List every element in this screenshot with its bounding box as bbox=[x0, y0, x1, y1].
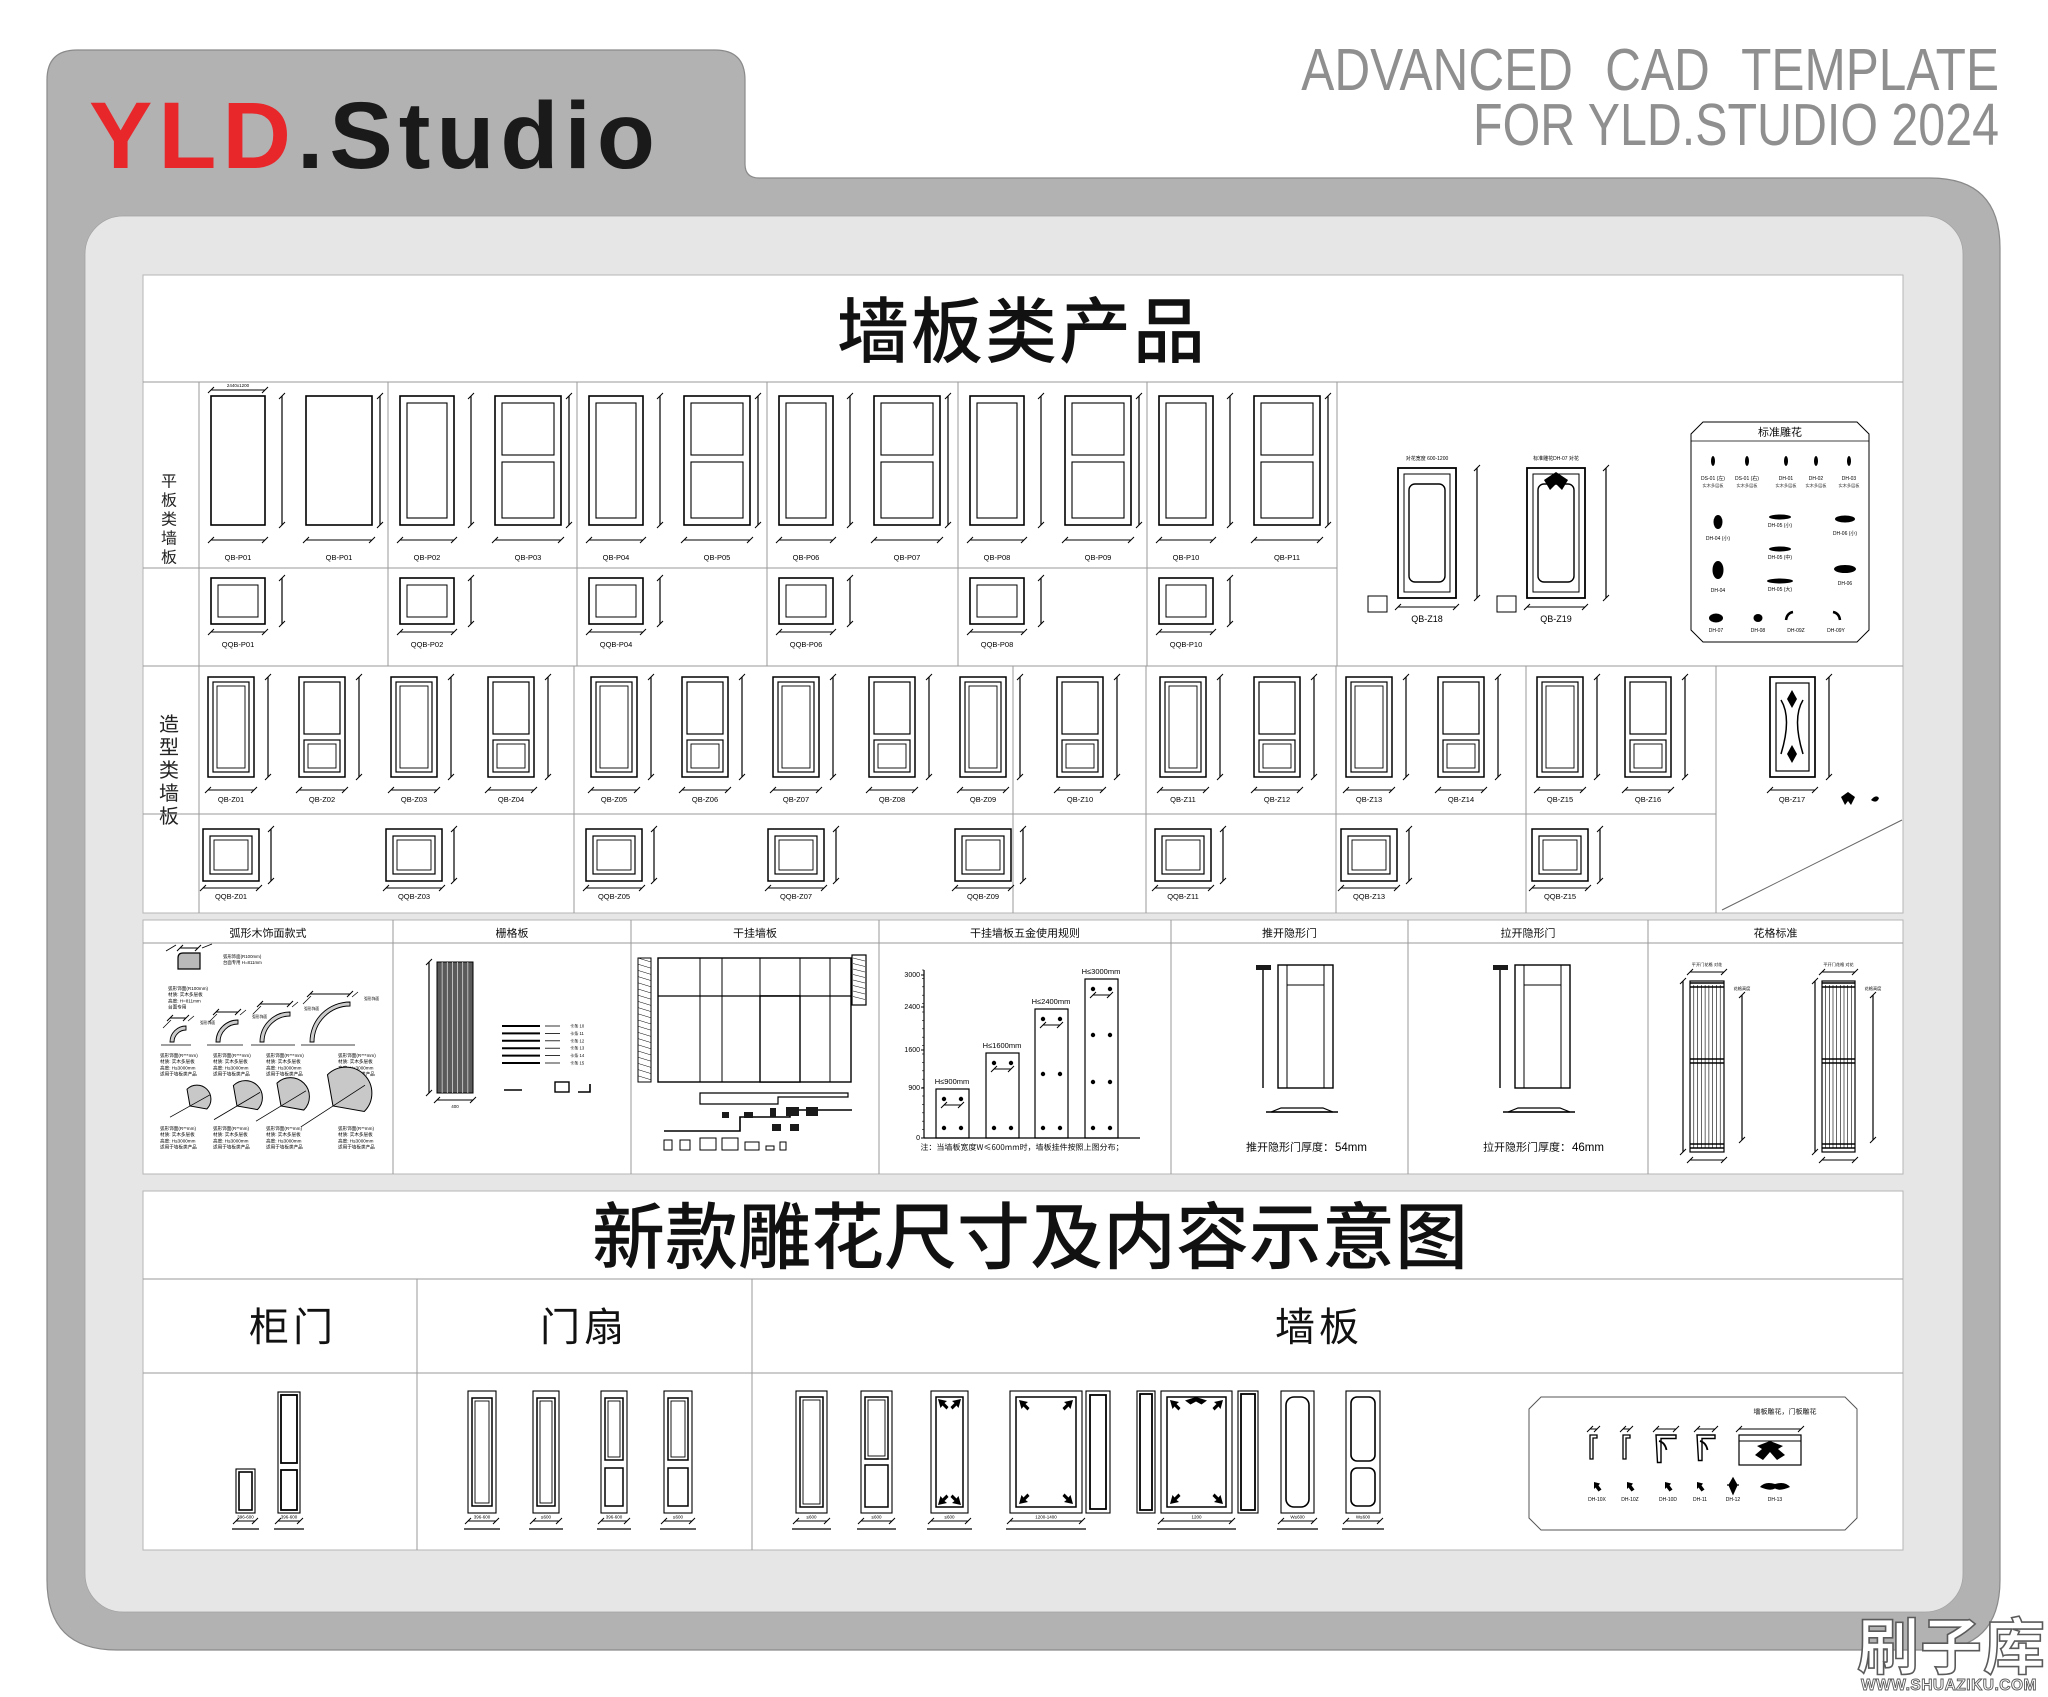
svg-text:QQB-P01: QQB-P01 bbox=[222, 640, 255, 649]
svg-text:弧形饰面(R100mm): 弧形饰面(R100mm) bbox=[223, 953, 262, 960]
svg-text:实木多层板: 实木多层板 bbox=[1703, 482, 1725, 489]
svg-text:QQB-Z01: QQB-Z01 bbox=[215, 892, 247, 901]
svg-text:DH-05 (小): DH-05 (小) bbox=[1768, 522, 1793, 529]
svg-text:400: 400 bbox=[451, 1104, 459, 1109]
svg-text:弧形饰面(R100mm): 弧形饰面(R100mm) bbox=[168, 985, 209, 992]
svg-text:QQB-P04: QQB-P04 bbox=[600, 640, 633, 649]
svg-text:标准雕花DH-07 对花: 标准雕花DH-07 对花 bbox=[1533, 455, 1579, 462]
svg-text:DH-07: DH-07 bbox=[1709, 628, 1724, 634]
svg-text:QB-Z01: QB-Z01 bbox=[218, 795, 244, 804]
svg-text:≤600: ≤600 bbox=[945, 1515, 955, 1520]
svg-text:QQB-P06: QQB-P06 bbox=[790, 640, 823, 649]
svg-text:QB-Z03: QB-Z03 bbox=[401, 795, 427, 804]
svg-text:弧形饰面: 弧形饰面 bbox=[200, 1020, 215, 1025]
svg-text:QB-Z16: QB-Z16 bbox=[1635, 795, 1661, 804]
svg-text:DH-03: DH-03 bbox=[1842, 476, 1857, 482]
svg-text:高度: H≤3000mm: 高度: H≤3000mm bbox=[338, 1137, 374, 1144]
svg-text:适用于墙板类产品: 适用于墙板类产品 bbox=[266, 1144, 303, 1151]
svg-text:QB-Z05: QB-Z05 bbox=[601, 795, 627, 804]
svg-text:弧形饰面(R**mm): 弧形饰面(R**mm) bbox=[160, 1125, 196, 1132]
svg-text:弧形饰面: 弧形饰面 bbox=[304, 1006, 319, 1011]
svg-text:对花宽度 600-1200: 对花宽度 600-1200 bbox=[1406, 455, 1449, 462]
svg-text:QQB-Z05: QQB-Z05 bbox=[598, 892, 630, 901]
svg-text:卡条 11: 卡条 11 bbox=[570, 1030, 585, 1037]
svg-text:DH-10Z: DH-10Z bbox=[1621, 1497, 1639, 1503]
svg-text:W≤600: W≤600 bbox=[1290, 1515, 1305, 1520]
svg-text:QB-Z12: QB-Z12 bbox=[1264, 795, 1290, 804]
svg-text:H≤1600mm: H≤1600mm bbox=[983, 1041, 1022, 1050]
svg-text:卡条 14: 卡条 14 bbox=[570, 1052, 585, 1059]
svg-text:弧形饰面(R***mm): 弧形饰面(R***mm) bbox=[338, 1052, 376, 1059]
svg-text:QB-P07: QB-P07 bbox=[894, 553, 921, 562]
svg-text:DH-05 (中): DH-05 (中) bbox=[1768, 554, 1793, 561]
svg-text:高度: H≤3000mm: 高度: H≤3000mm bbox=[213, 1064, 249, 1071]
svg-text:0: 0 bbox=[916, 1135, 920, 1142]
svg-text:QB-Z10: QB-Z10 bbox=[1067, 795, 1093, 804]
svg-text:QQB-P08: QQB-P08 bbox=[981, 640, 1014, 649]
svg-text:H≤2400mm: H≤2400mm bbox=[1032, 997, 1071, 1006]
svg-text:396-600: 396-600 bbox=[606, 1515, 623, 1520]
svg-text:H≤3000mm: H≤3000mm bbox=[1082, 967, 1121, 976]
svg-text:QB-Z09: QB-Z09 bbox=[970, 795, 996, 804]
svg-text:900: 900 bbox=[908, 1085, 920, 1092]
svg-text:平开门花格 对花: 平开门花格 对花 bbox=[1823, 961, 1853, 968]
svg-text:QB-Z07: QB-Z07 bbox=[783, 795, 809, 804]
svg-text:QQB-Z11: QQB-Z11 bbox=[1167, 892, 1199, 901]
svg-text:QB-P02: QB-P02 bbox=[414, 553, 441, 562]
svg-text:实木多层板: 实木多层板 bbox=[1737, 482, 1759, 489]
svg-text:FOR YLD.STUDIO 2024: FOR YLD.STUDIO 2024 bbox=[1473, 93, 1999, 159]
svg-text:QB-Z11: QB-Z11 bbox=[1170, 795, 1196, 804]
svg-text:高度: H≤3000mm: 高度: H≤3000mm bbox=[213, 1137, 249, 1144]
svg-text:QB-Z17: QB-Z17 bbox=[1779, 795, 1805, 804]
svg-text:实木多层板: 实木多层板 bbox=[1776, 482, 1798, 489]
svg-text:弧形饰面: 弧形饰面 bbox=[364, 996, 379, 1001]
svg-text:DH-06 (小): DH-06 (小) bbox=[1833, 530, 1858, 537]
svg-text:DH-01: DH-01 bbox=[1779, 476, 1794, 482]
svg-text:46mm: 46mm bbox=[1572, 1142, 1604, 1154]
svg-text:DH-06: DH-06 bbox=[1838, 581, 1853, 587]
svg-text:54mm: 54mm bbox=[1335, 1142, 1367, 1154]
svg-text:弧形饰面(R**mm): 弧形饰面(R**mm) bbox=[213, 1125, 249, 1132]
svg-text:QQB-Z09: QQB-Z09 bbox=[967, 892, 999, 901]
svg-text:DH-13: DH-13 bbox=[1768, 1497, 1783, 1503]
svg-text:QQB-Z03: QQB-Z03 bbox=[398, 892, 430, 901]
svg-text:≤600: ≤600 bbox=[673, 1515, 683, 1520]
svg-text:适用于墙板类产品: 适用于墙板类产品 bbox=[213, 1144, 250, 1151]
svg-text:2400: 2400 bbox=[904, 1004, 920, 1011]
svg-text:DH-10D: DH-10D bbox=[1659, 1497, 1677, 1503]
svg-text:卡条 10: 卡条 10 bbox=[570, 1023, 585, 1030]
svg-text:YLD.Studio: YLD.Studio bbox=[89, 83, 661, 189]
svg-text:高度: H≤3000mm: 高度: H≤3000mm bbox=[266, 1137, 302, 1144]
svg-text:≤600: ≤600 bbox=[807, 1515, 817, 1520]
svg-text:弧形饰面(R**mm): 弧形饰面(R**mm) bbox=[338, 1125, 374, 1132]
svg-text:高度: H=811mm: 高度: H=811mm bbox=[168, 997, 201, 1004]
svg-text:弧形饰面(R***mm): 弧形饰面(R***mm) bbox=[266, 1052, 304, 1059]
svg-text:1200: 1200 bbox=[1191, 1515, 1202, 1520]
svg-text:396-600: 396-600 bbox=[281, 1515, 298, 1520]
svg-text:QB-Z18: QB-Z18 bbox=[1411, 614, 1443, 624]
svg-text:DH-04 (小): DH-04 (小) bbox=[1706, 535, 1731, 542]
svg-text:适用于墙板类产品: 适用于墙板类产品 bbox=[160, 1144, 197, 1151]
svg-text:DH-08: DH-08 bbox=[1751, 628, 1766, 634]
svg-text:396-600: 396-600 bbox=[237, 1515, 254, 1520]
svg-text:QB-Z06: QB-Z06 bbox=[692, 795, 718, 804]
svg-text:卡条 15: 卡条 15 bbox=[570, 1060, 585, 1067]
svg-text:适用于墙板类产品: 适用于墙板类产品 bbox=[338, 1144, 375, 1151]
svg-text:弧形饰面(R***mm): 弧形饰面(R***mm) bbox=[160, 1052, 198, 1059]
svg-text:QB-P10: QB-P10 bbox=[1173, 553, 1200, 562]
svg-text:DH-11: DH-11 bbox=[1693, 1497, 1707, 1503]
svg-text:QB-P01: QB-P01 bbox=[225, 553, 252, 562]
svg-text:高度: H≤3000mm: 高度: H≤3000mm bbox=[160, 1137, 196, 1144]
svg-text:DS-01 (右): DS-01 (右) bbox=[1735, 475, 1759, 482]
svg-text:QB-Z08: QB-Z08 bbox=[879, 795, 905, 804]
svg-text:DH-12: DH-12 bbox=[1726, 1497, 1741, 1503]
svg-text:1600: 1600 bbox=[904, 1047, 920, 1054]
svg-text:高度: H≤3000mm: 高度: H≤3000mm bbox=[266, 1064, 302, 1071]
svg-text:实木多层板: 实木多层板 bbox=[1806, 482, 1828, 489]
svg-text:DH-02: DH-02 bbox=[1809, 476, 1824, 482]
svg-text:≤600: ≤600 bbox=[541, 1515, 551, 1520]
svg-text:3000: 3000 bbox=[904, 972, 920, 979]
svg-text:卡条 12: 卡条 12 bbox=[570, 1037, 585, 1044]
svg-text:花格高度: 花格高度 bbox=[1865, 985, 1883, 992]
svg-text:DH-09Y: DH-09Y bbox=[1827, 628, 1845, 634]
svg-text:QB-P11: QB-P11 bbox=[1274, 553, 1300, 562]
svg-text:台面专用 H=811mm: 台面专用 H=811mm bbox=[223, 959, 262, 966]
svg-text:弧形饰面: 弧形饰面 bbox=[252, 1014, 267, 1019]
svg-text:QB-Z13: QB-Z13 bbox=[1356, 795, 1382, 804]
svg-text:QB-P06: QB-P06 bbox=[793, 553, 820, 562]
svg-text:DH-05 (大): DH-05 (大) bbox=[1768, 586, 1793, 593]
svg-text:材质: 实木多层板: 材质: 实木多层板 bbox=[160, 1058, 195, 1065]
svg-text:≤600: ≤600 bbox=[872, 1515, 882, 1520]
svg-text:QB-Z04: QB-Z04 bbox=[498, 795, 524, 804]
svg-text:DH-09Z: DH-09Z bbox=[1787, 628, 1805, 634]
svg-text:材质: 实木多层板: 材质: 实木多层板 bbox=[213, 1131, 248, 1138]
svg-text:材质: 实木多层板: 材质: 实木多层板 bbox=[266, 1058, 301, 1065]
svg-text:QB-P03: QB-P03 bbox=[515, 553, 542, 562]
svg-text:QB-Z02: QB-Z02 bbox=[309, 795, 335, 804]
svg-text:QB-Z15: QB-Z15 bbox=[1547, 795, 1573, 804]
svg-text:适用于墙板类产品: 适用于墙板类产品 bbox=[266, 1071, 303, 1078]
svg-text:材质: 实木多层板: 材质: 实木多层板 bbox=[213, 1058, 248, 1065]
svg-text:弧形饰面(R**mm): 弧形饰面(R**mm) bbox=[266, 1125, 302, 1132]
svg-text:卡条 13: 卡条 13 bbox=[570, 1045, 585, 1052]
svg-text:适用于墙板类产品: 适用于墙板类产品 bbox=[213, 1071, 250, 1078]
svg-text:DH-10X: DH-10X bbox=[1588, 1497, 1606, 1503]
svg-text:QB-Z19: QB-Z19 bbox=[1540, 614, 1572, 624]
svg-text:材质: 实木多层板: 材质: 实木多层板 bbox=[266, 1131, 301, 1138]
svg-text:QQB-P02: QQB-P02 bbox=[411, 640, 444, 649]
svg-text:弧形饰面(R***mm): 弧形饰面(R***mm) bbox=[213, 1052, 251, 1059]
svg-text:QQB-Z13: QQB-Z13 bbox=[1353, 892, 1385, 901]
svg-text:适用于墙板类产品: 适用于墙板类产品 bbox=[160, 1071, 197, 1078]
svg-text:1200-1400: 1200-1400 bbox=[1035, 1515, 1057, 1520]
svg-text:QB-P09: QB-P09 bbox=[1085, 553, 1112, 562]
svg-text:实木多层板: 实木多层板 bbox=[1839, 482, 1861, 489]
svg-text:QB-P08: QB-P08 bbox=[984, 553, 1011, 562]
svg-text:WWW.SHUAZIKU.COM: WWW.SHUAZIKU.COM bbox=[1861, 1677, 2037, 1694]
svg-text:QB-P01: QB-P01 bbox=[326, 553, 353, 562]
svg-text:台面专用: 台面专用 bbox=[168, 1004, 187, 1011]
svg-text:QQB-Z07: QQB-Z07 bbox=[780, 892, 812, 901]
svg-text:材质: 实木多层板: 材质: 实木多层板 bbox=[160, 1131, 195, 1138]
svg-text:2440x1200: 2440x1200 bbox=[227, 383, 250, 388]
svg-text:396-600: 396-600 bbox=[474, 1515, 491, 1520]
svg-text:材质: 实木多层板: 材质: 实木多层板 bbox=[338, 1058, 373, 1065]
svg-text:DS-01 (左): DS-01 (左) bbox=[1701, 475, 1725, 482]
svg-text:QQB-Z15: QQB-Z15 bbox=[1544, 892, 1576, 901]
svg-text:材质: 实木多层板: 材质: 实木多层板 bbox=[168, 991, 203, 998]
svg-text:DH-04: DH-04 bbox=[1711, 588, 1726, 594]
svg-text:平开门花格 对花: 平开门花格 对花 bbox=[1692, 961, 1722, 968]
svg-text:QQB-P10: QQB-P10 bbox=[1170, 640, 1203, 649]
svg-text:W≤600: W≤600 bbox=[1356, 1515, 1371, 1520]
svg-text:QB-Z14: QB-Z14 bbox=[1448, 795, 1474, 804]
svg-text:高度: H≤3000mm: 高度: H≤3000mm bbox=[160, 1064, 196, 1071]
svg-text:QB-P04: QB-P04 bbox=[603, 553, 630, 562]
svg-text:H≤900mm: H≤900mm bbox=[935, 1077, 970, 1086]
svg-text:花格高度: 花格高度 bbox=[1734, 985, 1752, 992]
svg-text:材质: 实木多层板: 材质: 实木多层板 bbox=[338, 1131, 373, 1138]
svg-text:QB-P05: QB-P05 bbox=[704, 553, 731, 562]
